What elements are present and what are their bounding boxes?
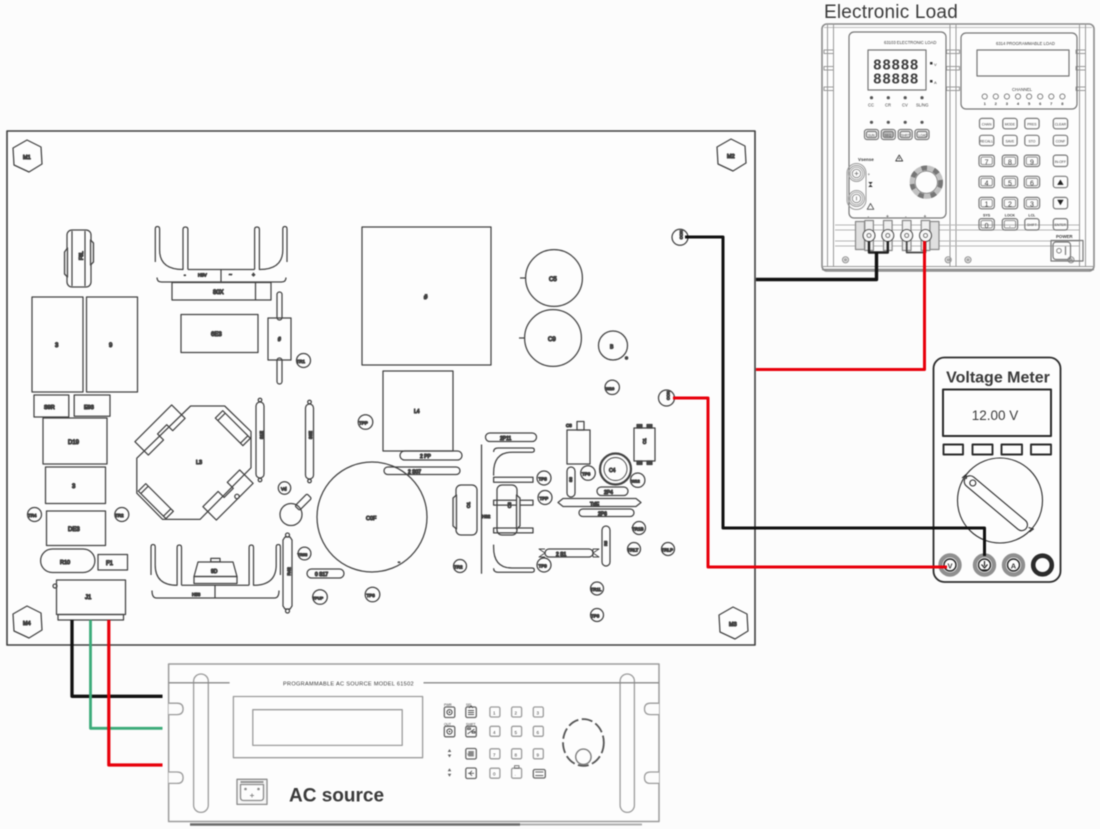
svg-text:TP6: TP6	[582, 472, 591, 477]
svg-text:PWR: PWR	[444, 703, 452, 707]
svg-text:SAVE: SAVE	[1006, 139, 1016, 143]
svg-text:7: 7	[985, 159, 989, 166]
svg-text:CV: CV	[902, 103, 908, 108]
svg-text:TR1: TR1	[297, 359, 306, 364]
svg-text:12.00 V: 12.00 V	[972, 408, 1019, 423]
svg-text:A: A	[934, 80, 937, 85]
svg-text:R5: R5	[603, 540, 608, 546]
svg-text:TR1L: TR1L	[591, 587, 603, 592]
svg-text:TR4: TR4	[28, 513, 37, 518]
svg-text:RECALL: RECALL	[980, 139, 993, 143]
svg-text:S9R: S9R	[44, 405, 55, 411]
svg-text:M4: M4	[23, 621, 31, 627]
svg-text:SHIFT: SHIFT	[466, 722, 476, 726]
svg-text:2 S1: 2 S1	[556, 552, 567, 558]
svg-text:TR2: TR2	[454, 565, 463, 570]
svg-text:H5V: H5V	[198, 273, 207, 278]
svg-text:36E: 36E	[308, 431, 313, 439]
svg-text:.: .	[515, 772, 516, 777]
svg-text:.: .	[1009, 222, 1011, 229]
svg-text:CC: CC	[868, 103, 874, 108]
svg-text:0 S17: 0 S17	[315, 572, 328, 578]
svg-text:3: 3	[1030, 202, 1034, 209]
svg-text:63103 ELECTRONIC LOAD: 63103 ELECTRONIC LOAD	[884, 40, 936, 45]
svg-text:A: A	[1011, 562, 1017, 571]
svg-text:6E3: 6E3	[211, 332, 222, 338]
svg-text:9D: 9D	[211, 569, 218, 575]
svg-text:POWER: POWER	[1056, 234, 1073, 239]
svg-text:TRLP: TRLP	[662, 548, 674, 553]
svg-text:MODE: MODE	[1005, 123, 1016, 127]
svg-text:SHIFT: SHIFT	[1027, 223, 1037, 227]
svg-text:L3: L3	[196, 460, 202, 466]
svg-text:88888: 88888	[873, 73, 919, 89]
svg-text:C1: C1	[642, 438, 647, 444]
svg-text:#: #	[278, 337, 281, 343]
svg-text:TP6: TP6	[591, 614, 600, 619]
svg-text:31E: 31E	[259, 431, 264, 439]
svg-text:SYS: SYS	[983, 213, 991, 217]
svg-text:C8: C8	[566, 423, 572, 428]
svg-text:TPP: TPP	[359, 421, 368, 426]
svg-text:PRES: PRES	[1027, 123, 1037, 127]
svg-text:LOAD: LOAD	[919, 134, 928, 138]
svg-text:1: 1	[985, 202, 989, 209]
svg-text:5: 5	[1008, 181, 1012, 188]
svg-text:CON: CON	[666, 391, 671, 400]
svg-text:C9: C9	[548, 337, 556, 343]
svg-text:8: 8	[1008, 159, 1012, 166]
svg-text:CR: CR	[885, 103, 891, 108]
svg-text:O1: O1	[466, 501, 471, 508]
svg-text:ENTER: ENTER	[1055, 223, 1067, 227]
svg-text:6: 6	[1030, 181, 1034, 188]
svg-text:9: 9	[1030, 159, 1034, 166]
svg-text:LCL: LCL	[1028, 213, 1036, 217]
svg-text:TP8: TP8	[539, 477, 548, 482]
svg-text:R42: R42	[287, 567, 292, 576]
svg-text:F6L: F6L	[79, 251, 85, 260]
svg-text:CHANNEL: CHANNEL	[1012, 87, 1033, 92]
svg-text:0: 0	[985, 223, 989, 230]
svg-text:+: +	[868, 172, 871, 177]
svg-text:CONF: CONF	[1056, 139, 1066, 143]
svg-text:AC source: AC source	[289, 786, 384, 807]
svg-text:TP9: TP9	[539, 564, 548, 569]
svg-text:6314 PROGRAMMABLE LOAD: 6314 PROGRAMMABLE LOAD	[996, 41, 1055, 46]
svg-text:SEL: SEL	[466, 703, 472, 707]
svg-text:+: +	[252, 273, 255, 279]
svg-text:SEQ: SEQ	[885, 134, 892, 138]
svg-text:Voltage Meter: Voltage Meter	[946, 370, 1050, 387]
svg-text:2P6: 2P6	[598, 512, 607, 518]
svg-text:DE3: DE3	[68, 527, 80, 533]
svg-text:CHAN: CHAN	[982, 123, 992, 127]
svg-text:H53: H53	[192, 592, 201, 597]
svg-text:C5: C5	[549, 277, 557, 283]
svg-text:M2: M2	[727, 154, 735, 160]
svg-text:C0F: C0F	[366, 516, 377, 522]
svg-text:2 S07: 2 S07	[408, 470, 421, 476]
svg-text:2P11: 2P11	[500, 436, 512, 442]
svg-text:SL/NG: SL/NG	[916, 103, 929, 108]
svg-text:LOCK: LOCK	[1005, 213, 1016, 217]
svg-text:2: 2	[1008, 202, 1012, 209]
svg-text:+: +	[886, 214, 889, 220]
svg-text:D19: D19	[68, 440, 80, 446]
svg-text:STO: STO	[1028, 139, 1035, 143]
svg-text:F1: F1	[106, 561, 114, 567]
svg-text:TR1B: TR1B	[632, 527, 644, 532]
svg-text:TR2: TR2	[115, 513, 124, 518]
svg-text:80X: 80X	[213, 290, 224, 296]
svg-text:W12: W12	[632, 479, 641, 484]
svg-text:TP6: TP6	[367, 593, 376, 598]
svg-text:IN-OFF: IN-OFF	[1055, 160, 1066, 164]
svg-text:TRLT: TRLT	[628, 548, 639, 553]
svg-text:2 PP: 2 PP	[420, 454, 432, 460]
svg-text:SHRT: SHRT	[901, 134, 910, 138]
svg-text:TdE: TdE	[590, 502, 600, 508]
svg-text:Vsense: Vsense	[858, 157, 874, 162]
svg-text:M1: M1	[23, 155, 31, 161]
svg-text:~: ~	[229, 273, 232, 279]
svg-text:C3: C3	[507, 502, 512, 508]
svg-text:H62: H62	[482, 514, 491, 519]
svg-text:J1: J1	[85, 595, 92, 601]
svg-text:4: 4	[985, 181, 989, 188]
svg-text:CLEAR: CLEAR	[1055, 123, 1067, 127]
svg-text:L4: L4	[414, 409, 420, 415]
svg-text:2P4: 2P4	[604, 490, 613, 496]
svg-text:V: V	[947, 562, 952, 571]
svg-text:TPP: TPP	[540, 496, 549, 501]
svg-text:W10: W10	[606, 386, 615, 391]
svg-text:-: -	[398, 560, 400, 566]
svg-text:Electronic Load: Electronic Load	[824, 2, 958, 23]
svg-text:Vd: Vd	[281, 487, 287, 492]
svg-text:+: +	[924, 214, 927, 220]
svg-text:TPUP: TPUP	[313, 596, 324, 601]
svg-text:S6: S6	[568, 476, 573, 482]
svg-text:V: V	[934, 62, 937, 67]
svg-text:M3: M3	[729, 622, 737, 628]
svg-text:TR03: TR03	[298, 552, 309, 557]
svg-text:E93: E93	[84, 405, 94, 411]
svg-text:CON: CON	[679, 230, 684, 239]
svg-text:R10: R10	[60, 560, 70, 566]
svg-text:SUN: SUN	[868, 134, 875, 138]
svg-text:C4: C4	[609, 468, 616, 474]
svg-text:OUT: OUT	[444, 722, 451, 726]
svg-text:PROGRAMMABLE AC SOURCE MOD: PROGRAMMABLE AC SOURCE MODEL 61502	[283, 681, 414, 687]
